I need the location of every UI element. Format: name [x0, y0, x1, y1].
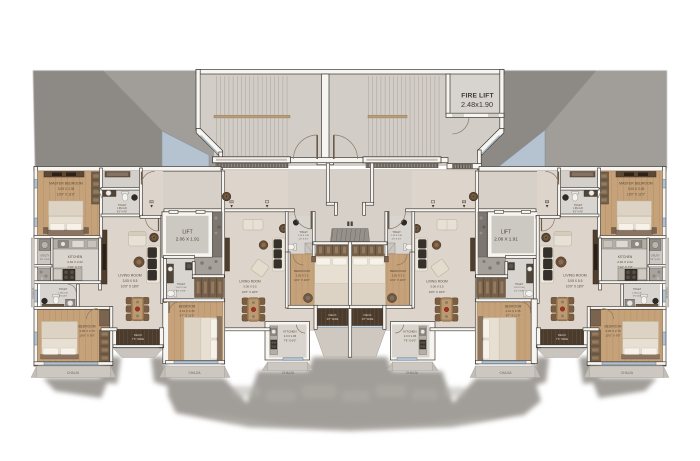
svg-text:MASTER BEDROOM: MASTER BEDROOM: [619, 182, 653, 186]
svg-text:FIRE LIFT: FIRE LIFT: [461, 93, 494, 100]
svg-text:3.05 X 5.5: 3.05 X 5.5: [568, 279, 583, 283]
svg-text:LIVING ROOM: LIVING ROOM: [426, 280, 448, 284]
svg-text:CHAJJA: CHAJJA: [621, 371, 634, 375]
svg-text:DECK: DECK: [363, 313, 371, 317]
svg-text:2.91 X 3.35: 2.91 X 3.35: [179, 309, 194, 313]
svg-text:BEDROOM: BEDROOM: [604, 325, 621, 329]
svg-text:CHAJJA: CHAJJA: [282, 371, 295, 375]
svg-text:TOILET: TOILET: [574, 204, 583, 207]
svg-text:DECK: DECK: [558, 333, 566, 337]
svg-text:10'0" X 18'0": 10'0" X 18'0": [242, 290, 259, 294]
svg-text:TOILET: TOILET: [177, 283, 186, 286]
svg-text:4'0" X 8'6": 4'0" X 8'6": [514, 290, 524, 292]
svg-text:BEDROOM: BEDROOM: [390, 269, 406, 273]
svg-text:2.40 X 2.22: 2.40 X 2.22: [67, 260, 83, 264]
svg-text:4'0" X 8'6": 4'0" X 8'6": [176, 290, 186, 292]
svg-text:CHAJJA: CHAJJA: [665, 288, 669, 299]
svg-text:3'6" WIDE: 3'6" WIDE: [327, 317, 339, 321]
svg-text:DECK: DECK: [328, 313, 336, 317]
svg-text:3.05 X 3.35: 3.05 X 3.35: [628, 187, 645, 191]
svg-text:KITCHEN: KITCHEN: [403, 330, 416, 334]
svg-text:KITCHEN: KITCHEN: [68, 255, 83, 259]
svg-text:9'7" X 11'0": 9'7" X 11'0": [180, 314, 195, 318]
svg-text:CHAJJA: CHAJJA: [67, 371, 80, 375]
svg-text:3.05 X 2.75: 3.05 X 2.75: [79, 329, 95, 333]
svg-text:CHAJJA: CHAJJA: [499, 371, 512, 375]
svg-text:2.91 X 3.35: 2.91 X 3.35: [505, 309, 520, 313]
svg-text:10'0" X 9'0": 10'0" X 9'0": [605, 334, 621, 338]
svg-text:CHAJJA: CHAJJA: [406, 371, 419, 375]
svg-text:3'0" X 4'6": 3'0" X 4'6": [650, 259, 660, 261]
svg-text:1.20 X 1.90: 1.20 X 1.90: [298, 235, 310, 237]
svg-text:CHAJJA: CHAJJA: [31, 287, 35, 298]
svg-text:7'10" X 7'3": 7'10" X 7'3": [67, 265, 83, 269]
svg-text:4'0" X 6'3": 4'0" X 6'3": [299, 238, 309, 240]
svg-text:7'6" X 6'0": 7'6" X 6'0": [404, 338, 417, 342]
svg-text:DECK: DECK: [134, 333, 142, 337]
svg-text:2.3 X 1.84: 2.3 X 1.84: [284, 334, 297, 338]
svg-text:1.96x1.20: 1.96x1.20: [632, 292, 642, 294]
svg-text:TOILET: TOILET: [299, 231, 308, 234]
svg-text:TOILET: TOILET: [118, 204, 127, 207]
svg-text:LIFT: LIFT: [501, 229, 511, 235]
svg-text:2.40 X 2.22: 2.40 X 2.22: [617, 260, 633, 264]
svg-text:3.05 X 5.5: 3.05 X 5.5: [123, 279, 138, 283]
svg-text:3'0" X 4'6": 3'0" X 4'6": [40, 259, 50, 261]
svg-text:UTILITY: UTILITY: [651, 255, 660, 258]
svg-text:TOILET: TOILET: [392, 231, 401, 234]
svg-text:CHAJJA: CHAJJA: [188, 371, 201, 375]
svg-text:BEDROOM: BEDROOM: [78, 325, 95, 329]
svg-text:BEDROOM: BEDROOM: [179, 305, 196, 309]
svg-text:404: 404: [545, 202, 548, 204]
svg-text:3.05 X 2.75: 3.05 X 2.75: [605, 329, 621, 333]
svg-text:TOILET: TOILET: [59, 288, 68, 291]
svg-text:2.06 X 1.91: 2.06 X 1.91: [176, 237, 200, 242]
svg-text:10'0" X 18'0": 10'0" X 18'0": [429, 290, 446, 294]
svg-text:6'5"x4'0": 6'5"x4'0": [59, 296, 67, 298]
svg-text:1.96x1.20: 1.96x1.20: [117, 208, 128, 210]
svg-text:LIVING ROOM: LIVING ROOM: [563, 274, 586, 278]
svg-text:3'6" WIDE: 3'6" WIDE: [362, 317, 374, 321]
svg-text:1.96x1.20: 1.96x1.20: [58, 292, 68, 294]
svg-text:10'0" X 11'0": 10'0" X 11'0": [627, 193, 646, 197]
svg-text:MASTER BEDROOM: MASTER BEDROOM: [49, 182, 83, 186]
svg-text:10'2" X 10'6": 10'2" X 10'6": [294, 278, 310, 282]
svg-text:TOILET: TOILET: [515, 283, 524, 286]
svg-text:7'6" WIDE: 7'6" WIDE: [556, 337, 568, 341]
svg-text:1.20 X 2.60: 1.20 X 2.60: [176, 287, 188, 289]
svg-text:1.20 X 2.60: 1.20 X 2.60: [514, 287, 526, 289]
svg-text:6'5"x4'0": 6'5"x4'0": [633, 296, 641, 298]
svg-text:KITCHEN: KITCHEN: [283, 330, 296, 334]
svg-text:6'5" X 4'0": 6'5" X 4'0": [117, 211, 127, 213]
svg-text:LIFT: LIFT: [182, 229, 192, 235]
svg-text:3.05 X 3.2: 3.05 X 3.2: [296, 274, 309, 278]
svg-text:10'2" X 10'6": 10'2" X 10'6": [390, 278, 406, 282]
svg-text:2.3 X 1.84: 2.3 X 1.84: [404, 334, 417, 338]
svg-text:6'5" X 4'0": 6'5" X 4'0": [573, 211, 583, 213]
svg-text:2.48x1.90: 2.48x1.90: [461, 100, 493, 109]
svg-text:1.20 X 1.90: 1.20 X 1.90: [391, 235, 403, 237]
svg-text:LIVING ROOM: LIVING ROOM: [118, 274, 141, 278]
svg-text:3.05 X 3.2: 3.05 X 3.2: [392, 274, 405, 278]
svg-text:BEDROOM: BEDROOM: [505, 305, 522, 309]
svg-text:LIVING ROOM: LIVING ROOM: [239, 280, 261, 284]
svg-text:9'7" X 11'0": 9'7" X 11'0": [506, 314, 521, 318]
svg-text:401: 401: [150, 202, 153, 204]
svg-text:TOILET: TOILET: [633, 288, 642, 291]
svg-text:403: 403: [462, 202, 465, 204]
svg-text:3.05 X 5.5: 3.05 X 5.5: [243, 285, 257, 289]
svg-text:10'0" X 9'0": 10'0" X 9'0": [79, 334, 95, 338]
svg-text:2.06 X 1.91: 2.06 X 1.91: [494, 237, 518, 242]
svg-text:3.05 X 3.35: 3.05 X 3.35: [58, 187, 75, 191]
svg-text:BEDROOM: BEDROOM: [294, 269, 310, 273]
svg-text:7'6" WIDE: 7'6" WIDE: [132, 337, 144, 341]
svg-text:7'6" X 6'0": 7'6" X 6'0": [284, 338, 297, 342]
svg-text:10'0" X 18'0": 10'0" X 18'0": [566, 285, 585, 289]
svg-text:4'0" X 6'3": 4'0" X 6'3": [392, 238, 402, 240]
svg-text:402: 402: [230, 202, 233, 204]
svg-text:7'10" X 7'3": 7'10" X 7'3": [617, 265, 633, 269]
svg-text:10'0" X 18'0": 10'0" X 18'0": [121, 285, 140, 289]
svg-text:10'0" X 11'0": 10'0" X 11'0": [57, 193, 76, 197]
svg-text:3.05 X 5.5: 3.05 X 5.5: [430, 285, 444, 289]
svg-text:1.96x1.20: 1.96x1.20: [573, 208, 584, 210]
svg-text:KITCHEN: KITCHEN: [618, 255, 633, 259]
svg-text:UTILITY: UTILITY: [40, 255, 49, 258]
